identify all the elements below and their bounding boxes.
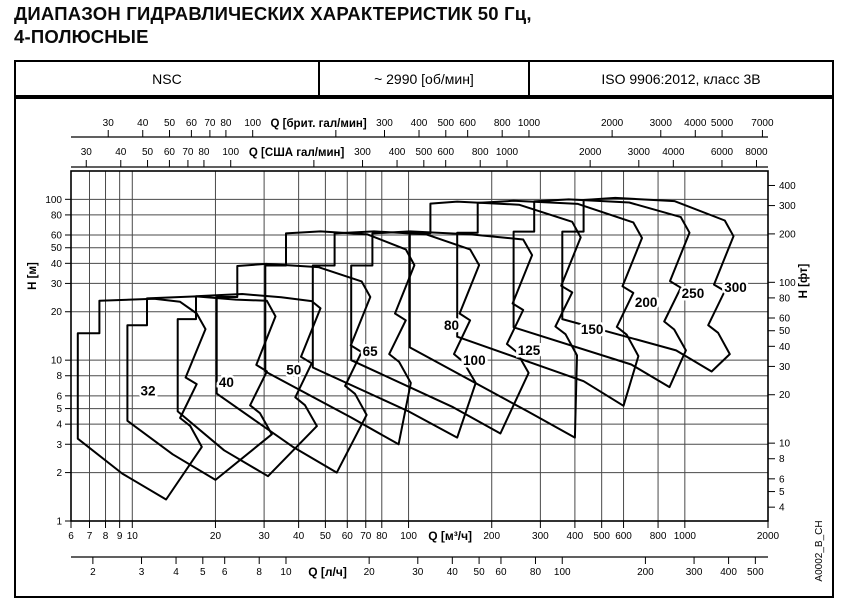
svg-text:70: 70 — [360, 531, 372, 542]
svg-text:30: 30 — [412, 567, 424, 578]
svg-text:2000: 2000 — [579, 147, 602, 158]
svg-text:80: 80 — [376, 531, 388, 542]
svg-text:20: 20 — [364, 567, 376, 578]
region-label-100: 100 — [463, 353, 486, 368]
svg-text:500: 500 — [747, 567, 764, 578]
svg-text:600: 600 — [459, 118, 476, 129]
x-axis-title-uk_gpm: Q [брит. гал/мин] — [270, 118, 366, 130]
svg-text:8: 8 — [256, 567, 262, 578]
svg-text:1000: 1000 — [674, 531, 697, 542]
page-title: ДИАПАЗОН ГИДРАВЛИЧЕСКИХ ХАРАКТЕРИСТИК 50… — [14, 3, 834, 48]
svg-text:1000: 1000 — [518, 118, 541, 129]
svg-text:800: 800 — [650, 531, 667, 542]
region-label-32: 32 — [140, 383, 155, 398]
svg-text:300: 300 — [779, 201, 796, 212]
svg-text:400: 400 — [411, 118, 428, 129]
y-axis-title-ft: H [фт] — [798, 263, 810, 298]
svg-text:1: 1 — [56, 517, 62, 528]
svg-text:500: 500 — [437, 118, 454, 129]
svg-text:30: 30 — [51, 279, 63, 290]
svg-text:300: 300 — [686, 567, 703, 578]
y-axis-title-m: H [м] — [27, 262, 39, 290]
svg-text:200: 200 — [483, 531, 500, 542]
svg-text:50: 50 — [779, 326, 791, 337]
svg-text:200: 200 — [637, 567, 654, 578]
svg-text:40: 40 — [447, 567, 459, 578]
svg-text:50: 50 — [51, 243, 63, 254]
svg-text:2: 2 — [90, 567, 96, 578]
svg-text:70: 70 — [182, 147, 194, 158]
svg-text:7000: 7000 — [751, 118, 774, 129]
svg-text:7: 7 — [87, 531, 93, 542]
svg-text:70: 70 — [204, 118, 216, 129]
svg-text:9: 9 — [117, 531, 123, 542]
svg-text:40: 40 — [779, 342, 791, 353]
svg-text:6: 6 — [779, 474, 785, 485]
svg-text:8: 8 — [103, 531, 109, 542]
svg-text:3: 3 — [139, 567, 145, 578]
region-label-150: 150 — [581, 322, 604, 337]
svg-text:60: 60 — [495, 567, 507, 578]
svg-text:100: 100 — [244, 118, 261, 129]
svg-text:2000: 2000 — [601, 118, 624, 129]
region-label-40: 40 — [219, 375, 234, 390]
x-axis-title-m3h: Q [м³/ч] — [428, 529, 472, 543]
svg-text:8: 8 — [56, 371, 62, 382]
svg-text:5: 5 — [200, 567, 206, 578]
header-table: NSC ~ 2990 [об/мин] ISO 9906:2012, класс… — [14, 60, 834, 97]
svg-text:5: 5 — [56, 404, 62, 415]
svg-text:2000: 2000 — [757, 531, 780, 542]
svg-text:6: 6 — [56, 391, 62, 402]
x-axis-title-us_gpm: Q [США гал/мин] — [249, 147, 345, 159]
region-label-300: 300 — [724, 280, 747, 295]
region-label-200: 200 — [635, 295, 658, 310]
svg-text:40: 40 — [293, 531, 305, 542]
svg-text:50: 50 — [474, 567, 486, 578]
region-label-65: 65 — [363, 344, 379, 359]
svg-text:60: 60 — [342, 531, 354, 542]
region-32 — [78, 299, 206, 500]
svg-text:500: 500 — [415, 147, 432, 158]
pump-regions — [78, 198, 734, 500]
svg-text:400: 400 — [567, 531, 584, 542]
svg-text:30: 30 — [81, 147, 93, 158]
svg-text:5000: 5000 — [711, 118, 734, 129]
svg-text:300: 300 — [354, 147, 371, 158]
region-label-250: 250 — [682, 286, 705, 301]
svg-text:4: 4 — [56, 420, 62, 431]
svg-text:800: 800 — [494, 118, 511, 129]
svg-text:10: 10 — [127, 531, 139, 542]
svg-text:30: 30 — [259, 531, 271, 542]
svg-text:50: 50 — [164, 118, 176, 129]
region-label-80: 80 — [444, 318, 459, 333]
svg-text:500: 500 — [593, 531, 610, 542]
svg-text:4000: 4000 — [662, 147, 685, 158]
x-axis-ls: 23456810203040506080100200300400500Q [л/… — [71, 557, 768, 579]
header-speed-cell: ~ 2990 [об/мин] — [318, 62, 530, 95]
svg-text:6000: 6000 — [711, 147, 734, 158]
svg-text:3000: 3000 — [650, 118, 673, 129]
svg-text:10: 10 — [280, 567, 292, 578]
svg-text:3000: 3000 — [628, 147, 651, 158]
region-label-50: 50 — [286, 362, 301, 377]
svg-text:30: 30 — [779, 362, 791, 373]
svg-text:10: 10 — [51, 356, 63, 367]
svg-text:4: 4 — [779, 503, 785, 514]
svg-text:100: 100 — [222, 147, 239, 158]
svg-text:100: 100 — [779, 278, 796, 289]
x-axis-title-ls: Q [л/ч] — [308, 565, 347, 579]
y-axis-m: 123456810203040506080100 — [45, 195, 71, 528]
svg-text:4: 4 — [173, 567, 179, 578]
svg-text:20: 20 — [51, 307, 63, 318]
region-200 — [457, 201, 642, 406]
svg-text:5: 5 — [779, 487, 785, 498]
svg-text:2: 2 — [56, 468, 62, 479]
svg-text:60: 60 — [779, 313, 791, 324]
svg-text:60: 60 — [164, 147, 176, 158]
x-axis-uk_gpm: 3040506070801003004005006008001000200030… — [71, 118, 774, 137]
svg-text:80: 80 — [198, 147, 210, 158]
header-series-cell: NSC — [16, 62, 318, 95]
svg-text:100: 100 — [554, 567, 571, 578]
svg-text:20: 20 — [210, 531, 222, 542]
svg-text:60: 60 — [186, 118, 198, 129]
header-standard-cell: ISO 9906:2012, класс 3В — [530, 62, 832, 95]
page-title-line1: ДИАПАЗОН ГИДРАВЛИЧЕСКИХ ХАРАКТЕРИСТИК 50… — [14, 3, 834, 26]
svg-text:3: 3 — [56, 440, 62, 451]
page: { "title": { "line1": "ДИАПАЗОН ГИДРАВЛИ… — [0, 0, 848, 602]
hydraulic-range-chart: 3040506070801003004005006008001000200030… — [16, 99, 832, 596]
svg-text:80: 80 — [51, 210, 63, 221]
svg-text:60: 60 — [51, 231, 63, 242]
region-label-125: 125 — [518, 343, 541, 358]
x-axis-us_gpm: 3040506070801003004005006008001000200030… — [71, 147, 768, 167]
y-axis-ft: 456810203040506080100200300400 — [768, 181, 796, 514]
svg-text:80: 80 — [530, 567, 542, 578]
svg-text:300: 300 — [532, 531, 549, 542]
svg-text:6: 6 — [68, 531, 74, 542]
svg-text:10: 10 — [779, 439, 791, 450]
svg-text:400: 400 — [720, 567, 737, 578]
x-axis-m3h: 6789102030405060708010020030040050060080… — [68, 521, 779, 543]
svg-text:4000: 4000 — [684, 118, 707, 129]
page-title-line2: 4-ПОЛЮСНЫЕ — [14, 26, 834, 49]
svg-text:600: 600 — [437, 147, 454, 158]
svg-text:20: 20 — [779, 390, 791, 401]
svg-text:600: 600 — [615, 531, 632, 542]
svg-text:400: 400 — [389, 147, 406, 158]
svg-text:6: 6 — [222, 567, 228, 578]
chart-figure: 3040506070801003004005006008001000200030… — [14, 97, 834, 598]
svg-text:800: 800 — [472, 147, 489, 158]
svg-text:50: 50 — [320, 531, 332, 542]
svg-text:8000: 8000 — [745, 147, 768, 158]
svg-text:300: 300 — [376, 118, 393, 129]
svg-text:1000: 1000 — [496, 147, 519, 158]
svg-text:400: 400 — [779, 181, 796, 192]
svg-text:40: 40 — [137, 118, 149, 129]
drawing-code-watermark: A0002_B_CH — [814, 520, 825, 581]
svg-text:40: 40 — [51, 259, 63, 270]
svg-text:8: 8 — [779, 454, 785, 465]
svg-text:40: 40 — [115, 147, 127, 158]
svg-text:50: 50 — [142, 147, 154, 158]
region-125 — [351, 231, 532, 433]
svg-text:100: 100 — [400, 531, 417, 542]
svg-text:200: 200 — [779, 229, 796, 240]
svg-text:80: 80 — [220, 118, 232, 129]
svg-text:80: 80 — [779, 293, 791, 304]
svg-text:30: 30 — [103, 118, 115, 129]
svg-text:100: 100 — [45, 195, 62, 206]
region-300 — [562, 198, 733, 372]
